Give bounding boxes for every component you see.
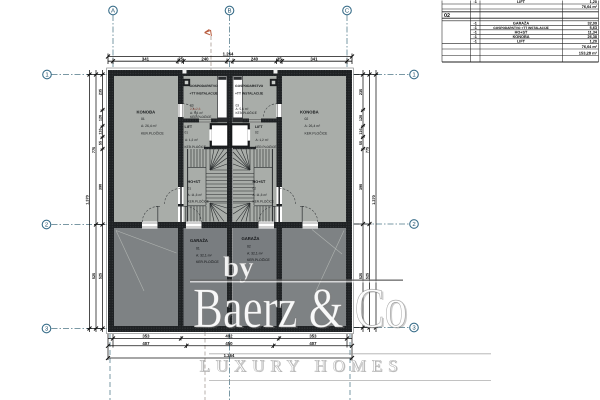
svg-text:+TT INSTALACIJE: +TT INSTALACIJE <box>235 92 264 96</box>
svg-text:+TT INSTALACIJE: +TT INSTALACIJE <box>190 92 219 96</box>
svg-text:KONOBA: KONOBA <box>300 110 319 115</box>
svg-text:GARAŽA: GARAŽA <box>242 236 260 241</box>
svg-text:KER.PLOČICE: KER.PLOČICE <box>196 260 220 264</box>
svg-text:116: 116 <box>99 128 103 134</box>
svg-text:341: 341 <box>142 56 150 61</box>
svg-text:32,09: 32,09 <box>587 21 597 25</box>
svg-text:153,28 m²: 153,28 m² <box>579 50 598 55</box>
svg-text:240: 240 <box>201 56 209 61</box>
svg-text:HO+ST: HO+ST <box>188 180 201 184</box>
svg-text:525: 525 <box>99 273 103 279</box>
svg-text:02: 02 <box>305 117 309 121</box>
svg-text:A: 32,1 m²: A: 32,1 m² <box>196 254 213 258</box>
svg-text:LIFT: LIFT <box>517 39 526 43</box>
svg-text:-1: -1 <box>474 39 477 43</box>
svg-text:C: C <box>345 8 350 15</box>
svg-text:5,63: 5,63 <box>590 26 597 30</box>
svg-text:55: 55 <box>359 141 363 145</box>
svg-text:1.264: 1.264 <box>223 52 234 57</box>
svg-text:LUXURY HOMES: LUXURY HOMES <box>200 357 406 376</box>
svg-text:775: 775 <box>366 147 370 153</box>
svg-text:450: 450 <box>225 341 233 346</box>
svg-text:GOSPODARSTVO +TT INSTALACIJE: GOSPODARSTVO +TT INSTALACIJE <box>493 26 548 30</box>
svg-text:A: 11,3 m²: A: 11,3 m² <box>253 193 267 197</box>
svg-text:GARAŽA: GARAŽA <box>190 238 208 243</box>
svg-text:26,38: 26,38 <box>587 35 597 39</box>
svg-text:-1: -1 <box>474 35 477 39</box>
svg-text:120: 120 <box>99 115 103 121</box>
svg-text:A: 26,4 m²: A: 26,4 m² <box>305 124 322 128</box>
svg-text:01: 01 <box>196 247 200 251</box>
svg-text:KER.PLOČICE: KER.PLOČICE <box>255 145 276 149</box>
svg-text:KER.PLOČICE: KER.PLOČICE <box>253 200 274 204</box>
svg-text:01: 01 <box>141 117 145 121</box>
svg-text:HO+ST: HO+ST <box>253 180 266 184</box>
svg-text:1,20: 1,20 <box>590 39 597 43</box>
svg-text:KER.PLOČICE: KER.PLOČICE <box>236 111 257 115</box>
svg-text:KONOBA: KONOBA <box>513 35 530 39</box>
svg-text:390: 390 <box>99 184 103 190</box>
svg-text:A: 1,2 m²: A: 1,2 m² <box>185 138 198 142</box>
svg-text:LIFT: LIFT <box>185 125 193 129</box>
svg-text:LIFT: LIFT <box>517 0 526 4</box>
svg-text:11,34: 11,34 <box>588 30 598 34</box>
svg-text:76,64 m²: 76,64 m² <box>582 45 598 49</box>
svg-text:25: 25 <box>277 56 282 61</box>
svg-text:390: 390 <box>359 184 363 190</box>
svg-text:LIFT: LIFT <box>255 125 263 129</box>
svg-text:240: 240 <box>251 56 259 61</box>
svg-text:120: 120 <box>359 115 363 121</box>
svg-text:525: 525 <box>92 273 96 279</box>
svg-text:-1: -1 <box>474 21 477 25</box>
svg-text:KER.PLOČICE: KER.PLOČICE <box>185 145 206 149</box>
svg-text:A: 11,3 m²: A: 11,3 m² <box>188 193 202 197</box>
svg-text:-1: -1 <box>474 26 477 30</box>
svg-text:GOSPODARSTVO: GOSPODARSTVO <box>235 84 264 88</box>
svg-text:116: 116 <box>359 128 363 134</box>
svg-text:HO+ST: HO+ST <box>515 30 528 34</box>
svg-text:KER.PLOČICE: KER.PLOČICE <box>190 115 211 119</box>
svg-text:GOSPODARSTVO: GOSPODARSTVO <box>190 84 219 88</box>
svg-text:1.370: 1.370 <box>372 195 376 205</box>
svg-text:01: 01 <box>185 131 189 135</box>
svg-text:353: 353 <box>142 334 150 339</box>
svg-text:KONOBA: KONOBA <box>137 110 156 115</box>
svg-text:02: 02 <box>253 187 257 191</box>
svg-text:235: 235 <box>359 89 363 95</box>
svg-text:235: 235 <box>99 89 103 95</box>
svg-text:KER.PLOČICE: KER.PLOČICE <box>188 200 209 204</box>
svg-text:1.370: 1.370 <box>86 195 90 205</box>
svg-text:1,20: 1,20 <box>590 0 597 4</box>
svg-text:25: 25 <box>178 56 183 61</box>
svg-text:KER.PLOČICE: KER.PLOČICE <box>305 132 329 136</box>
svg-text:GARAŽA: GARAŽA <box>513 20 529 25</box>
svg-text:341: 341 <box>310 56 318 61</box>
svg-text:407: 407 <box>142 341 150 346</box>
svg-text:A: 26,4 m²: A: 26,4 m² <box>141 124 158 128</box>
svg-text:55: 55 <box>99 141 103 145</box>
svg-text:-1: -1 <box>474 0 477 4</box>
svg-text:-1: -1 <box>474 30 477 34</box>
svg-text:76,64 m²: 76,64 m² <box>582 5 598 9</box>
svg-text:775: 775 <box>92 147 96 153</box>
svg-text:01: 01 <box>188 187 192 191</box>
svg-text:B: B <box>227 8 231 15</box>
svg-text:02: 02 <box>255 131 259 135</box>
svg-text:A: A <box>111 8 115 15</box>
svg-text:KER.PLOČICE: KER.PLOČICE <box>141 132 165 136</box>
svg-text:407: 407 <box>309 341 317 346</box>
svg-text:02: 02 <box>444 13 450 19</box>
svg-text:Baerz & Co: Baerz & Co <box>193 277 407 340</box>
svg-text:A: 1,2 m²: A: 1,2 m² <box>256 138 269 142</box>
svg-text:02: 02 <box>247 245 251 249</box>
